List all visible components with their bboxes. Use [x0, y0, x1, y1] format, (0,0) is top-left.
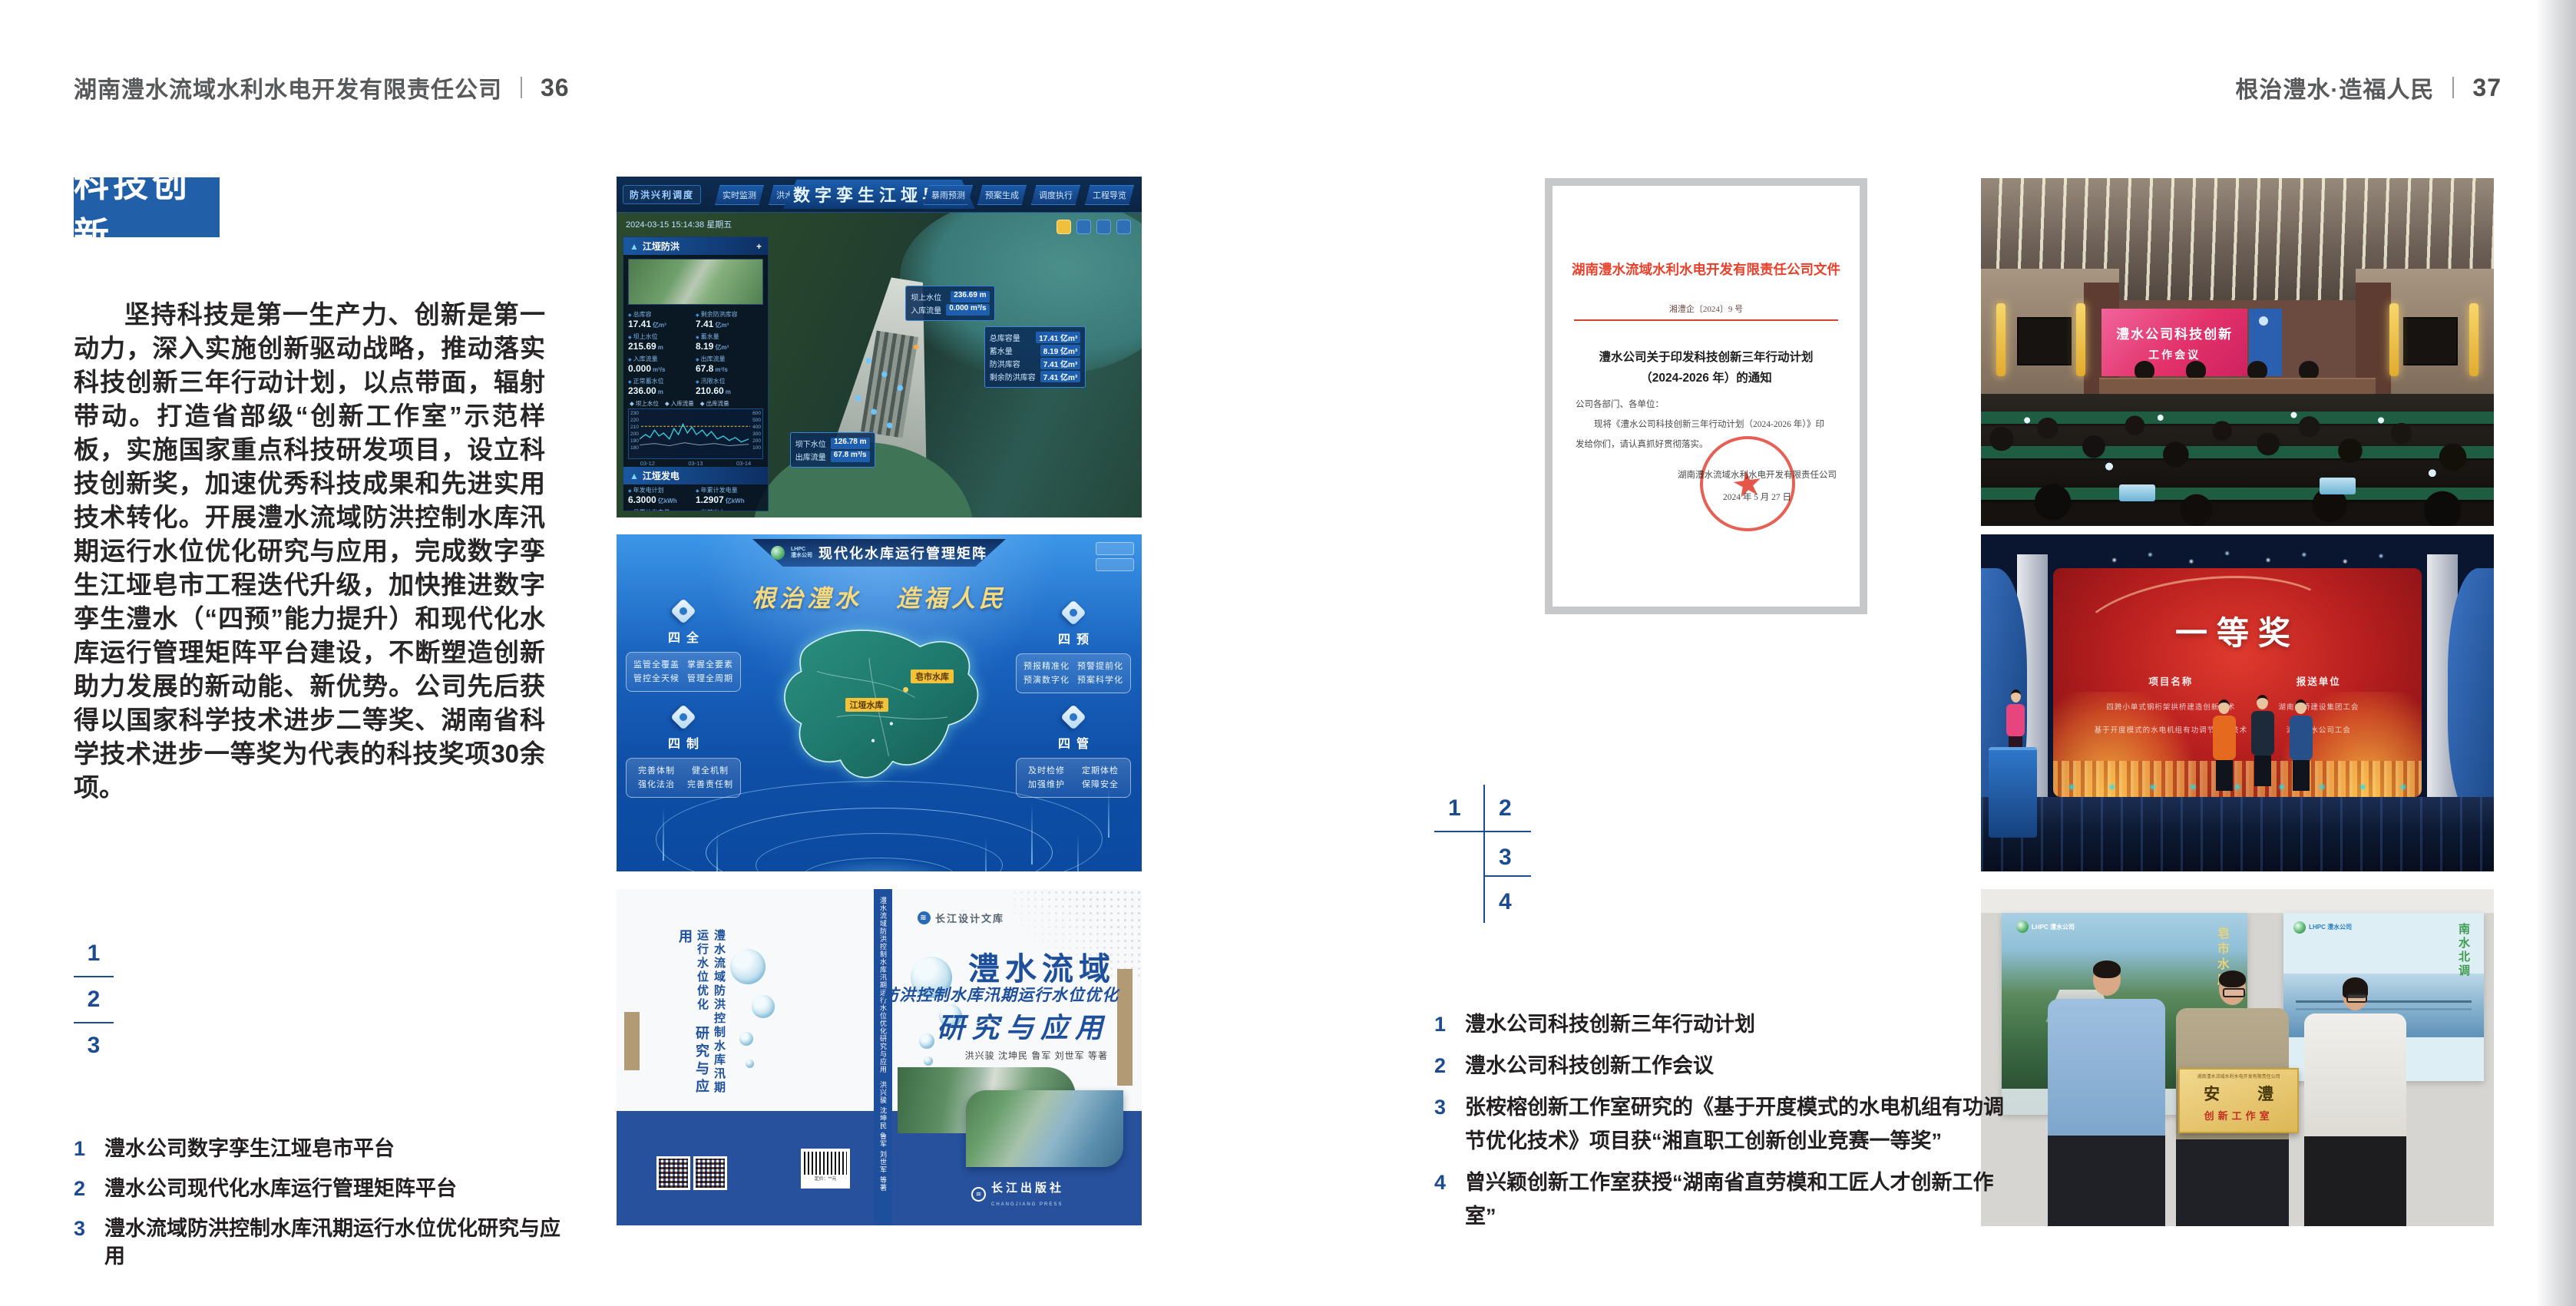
- audience-silhouettes: [1981, 394, 2494, 526]
- plaque-title: 安 澧: [2184, 1082, 2293, 1105]
- key-divider-line: [74, 976, 114, 977]
- wall-panel: [2356, 283, 2392, 394]
- caption-text: 曾兴颖创新工作室获授“湖南省直劳模和工匠人才创新工作室”: [1465, 1165, 2006, 1233]
- key-number: 3: [1499, 845, 1512, 871]
- qr-code: [656, 1156, 690, 1190]
- toolbar-icons: [1057, 220, 1131, 234]
- panel-title: 四预: [1016, 629, 1131, 647]
- header-left: 湖南澧水流域水利水电开发有限责任公司 36: [74, 71, 570, 104]
- panel-flood-header: ▲江垭防洪 +: [623, 237, 768, 255]
- panel-sizhi: 四制 完善体制健全机制 强化法治完善责任制: [626, 708, 741, 798]
- dam-thumbnail: [628, 259, 763, 305]
- caption-text: 澧水流域防洪控制水库汛期运行水位优化研究与应用: [104, 1215, 565, 1270]
- power-stats-grid: 年发电计划6.3000亿kWh 年累计发电量1.2907亿kWh 月累计发电量3…: [623, 484, 768, 511]
- column-unit-header: 报送单位: [2245, 673, 2392, 688]
- stat-cell: 坝上水位215.69m: [628, 332, 696, 352]
- chart-y-axis-left: 230220210200190180: [630, 411, 639, 451]
- chart-legend: ◆ 坝上水位 ◆ 入库流量 ◆ 出库流量: [623, 398, 768, 408]
- figure-official-document: 湖南澧水流域水利水电开发有限责任公司文件 湘澧企〔2024〕9 号 澧水公司关于…: [1545, 178, 1867, 614]
- caption-text: 澧水公司科技创新工作会议: [1465, 1049, 1714, 1083]
- matrix-title: 现代化水库运行管理矩阵: [818, 543, 987, 563]
- stage-floor: [1981, 797, 2494, 871]
- publisher-logo-icon: ≋: [971, 1187, 986, 1202]
- podium: [1989, 747, 2037, 838]
- library-logo: ≋ 长江设计文库: [918, 911, 1004, 925]
- authors-line: 洪兴骏 沈坤民 鲁军 刘世军 等著: [965, 1049, 1108, 1062]
- caption-text: 澧水公司科技创新三年行动计划: [1465, 1007, 1755, 1041]
- key-line: [1483, 875, 1531, 877]
- caption-text: 张桉榕创新工作室研究的《基于开度模式的水电机组有功调节优化技术》项目获“湘直职工…: [1465, 1090, 2006, 1158]
- mode-tag: 防洪兴利调度: [623, 185, 701, 204]
- tissue-box: [2320, 478, 2356, 495]
- document-body: 公司各部门、各单位： 现将《澧水公司科技创新三年行动计划（2024-2026 年…: [1576, 395, 1837, 455]
- callout-storage: 总库容量17.41 亿m³ 蓄水量8.19 亿m³ 防洪库容7.41 亿m³ 剩…: [984, 326, 1086, 388]
- dashboard-topbar: 防洪兴利调度 实时监测 洪水预报 防洪预警 数字孪生江垭皂市 暴雨预测 预案生成…: [617, 177, 1142, 213]
- key-line: [1434, 831, 1531, 832]
- front-title-main: 澧水流域: [968, 943, 1116, 989]
- caption-text: 澧水公司现代化水库运行管理矩阵平台: [104, 1175, 457, 1202]
- panel-title: 四制: [626, 733, 741, 752]
- map-label-jiangya: 江垭水库: [845, 698, 888, 712]
- panel-power-title: 江垭发电: [643, 471, 680, 481]
- stat-cell: 剩余防洪库容7.41亿m³: [696, 310, 763, 329]
- caption-number: 2: [1434, 1049, 1465, 1083]
- magazine-spread: 湖南澧水流域水利水电开发有限责任公司 36 科技创新 坚持科技是第一生产力、创新…: [0, 0, 2576, 1306]
- key-divider-line: [74, 1022, 114, 1023]
- company-name: 湖南澧水流域水利水电开发有限责任公司: [74, 71, 502, 104]
- page-edge-shadow: [2536, 0, 2576, 1306]
- figure-book-cover: 澧水流域防洪控制水库汛期运行水位优化 研究与应用 定价：**元 澧水流域防洪控制…: [617, 889, 1142, 1225]
- cover-photo-powerhouse: [966, 1090, 1123, 1167]
- key-number: 1: [1448, 795, 1461, 822]
- brand-text: LHPC澧水公司: [791, 547, 812, 559]
- figure-digital-twin-dashboard: 防洪兴利调度 实时监测 洪水预报 防洪预警 数字孪生江垭皂市 暴雨预测 预案生成…: [617, 177, 1142, 517]
- key-number: 2: [74, 984, 114, 1015]
- publisher-mark: ≋ 长江出版社CHANGJIANG PRESS: [971, 1179, 1064, 1209]
- water-drop: [739, 1032, 753, 1046]
- figure-group-photo: LHPC 澧水公司 皂市水库 LHPC 澧水公司 南水北调 湖南澧水流域水利水电…: [1981, 889, 2494, 1226]
- stage-light-fixtures: [2053, 770, 2422, 804]
- caption-row: 4 曾兴颖创新工作室获授“湖南省直劳模和工匠人才创新工作室”: [1434, 1165, 2006, 1233]
- tissue-box: [2119, 484, 2155, 502]
- presenter-silhouette: [2186, 361, 2206, 379]
- tab-dispatch-execute[interactable]: 调度执行: [1031, 185, 1080, 205]
- layers-icon[interactable]: [1076, 220, 1091, 234]
- tabs-right: 暴雨预测 预案生成 调度执行 工程导览: [924, 185, 1134, 205]
- panel-items: 预报精准化预警提前化 预演数字化预案科学化: [1016, 653, 1131, 693]
- header-right: 根治澧水·造福人民 37: [2235, 71, 2502, 104]
- panel-title: 四全: [626, 627, 741, 646]
- awardee-blue: [2289, 699, 2313, 792]
- person-right: [2304, 980, 2407, 1226]
- map-label-zaoshi: 皂市水库: [911, 670, 954, 683]
- captions-left: 1 澧水公司数字孪生江垭皂市平台 2 澧水公司现代化水库运行管理矩阵平台 3 澧…: [74, 1135, 565, 1282]
- front-title-tail: 研究与应用: [937, 1006, 1109, 1046]
- water-drop: [919, 1033, 934, 1049]
- wave-icon: ≋: [918, 911, 931, 924]
- blue-panel-right: [2448, 568, 2494, 825]
- water-level-chart: 230220210200190180 600500400300200100: [628, 408, 763, 459]
- stat-cell: 年累计发电量1.2907亿kWh: [696, 486, 763, 505]
- caption-row: 1 澧水公司科技创新三年行动计划: [1434, 1007, 2006, 1041]
- awardee-orange: [2212, 699, 2237, 792]
- fullscreen-button[interactable]: [1096, 542, 1134, 555]
- stat-cell: 正常蓄水位236.00m: [628, 377, 696, 396]
- panel-items: 及时检修定期体检 加强维护保障安全: [1016, 758, 1131, 798]
- page-number-left: 36: [541, 74, 570, 102]
- caption-row: 2 澧水公司现代化水库运行管理矩阵平台: [74, 1175, 565, 1202]
- star-icon: ★: [1729, 461, 1766, 506]
- wall-lamp: [2076, 303, 2085, 376]
- stat-cell: 出库流量67.8m³/s: [696, 355, 763, 374]
- qr-code: [693, 1156, 727, 1190]
- nav-button[interactable]: [1096, 558, 1134, 571]
- tab-realtime-monitor[interactable]: 实时监测: [715, 185, 764, 205]
- caption-row: 2 澧水公司科技创新工作会议: [1434, 1049, 2006, 1083]
- tan-accent: [1117, 969, 1133, 1086]
- tab-plan-generate[interactable]: 预案生成: [977, 185, 1027, 205]
- stat-cell: 年发电计划6.3000亿kWh: [628, 486, 696, 505]
- document-page: 湖南澧水流域水利水电开发有限责任公司文件 湘澧企〔2024〕9 号 澧水公司关于…: [1553, 186, 1860, 607]
- front-title-sub: 防洪控制水库汛期运行水位优化: [882, 983, 1119, 1006]
- ceiling-strip: [1981, 889, 2494, 913]
- left-data-panel: ▲江垭防洪 + 总库容17.41亿m³ 剩余防洪库容7.41亿m³ 坝上水位21…: [623, 236, 769, 511]
- key-number: 2: [1499, 795, 1512, 822]
- tab-rain-forecast[interactable]: 暴雨预测: [924, 185, 973, 205]
- book-spine: 澧水流域防洪控制水库汛期运行水位优化研究与应用 洪兴骏 沈坤民 鲁军 刘世军 等…: [874, 889, 892, 1225]
- stat-cell: 入库流量0.000m³/s: [628, 355, 696, 374]
- callout-downstream: 坝下水位126.78 m 出库流量67.8 m³/s: [790, 432, 875, 468]
- panel-siguan: 四管 及时检修定期体检 加强维护保障安全: [1016, 708, 1131, 798]
- barcode: 定价：**元: [801, 1149, 850, 1189]
- caption-number: 4: [1434, 1165, 1465, 1233]
- back-cover-title: 澧水流域防洪控制水库汛期运行水位优化 研究与应用: [676, 929, 727, 1106]
- red-rule: [1574, 319, 1838, 321]
- screen-title-line2: 工作会议: [2148, 347, 2201, 362]
- caption-number: 2: [74, 1175, 104, 1202]
- presenter-silhouette: [2299, 361, 2319, 379]
- key-number: 3: [74, 1030, 114, 1061]
- stat-cell: 月累计发电量3359.21万kWh: [628, 508, 696, 511]
- panel-siyu: 四预 预报精准化预警提前化 预演数字化预案科学化: [1016, 603, 1131, 693]
- water-drop: [730, 949, 766, 984]
- panel-logo-icon: ▲: [630, 471, 639, 481]
- basin-map: [752, 617, 1013, 817]
- lhpc-logo-icon: LHPC 澧水公司: [2293, 921, 2352, 934]
- panel-title: 四管: [1016, 733, 1131, 752]
- page-number-right: 37: [2472, 74, 2502, 102]
- figure-key-left: 1 2 3: [74, 938, 114, 1061]
- figure-meeting-photo: 澧水公司科技创新 工作会议: [1981, 178, 2494, 526]
- wall-lamp: [2389, 303, 2399, 376]
- caption-row: 3 澧水流域防洪控制水库汛期运行水位优化研究与应用: [74, 1215, 565, 1270]
- header-divider: [2452, 77, 2454, 98]
- caption-number: 3: [74, 1215, 104, 1270]
- panel-icon: [1060, 600, 1086, 626]
- caption-number: 1: [1434, 1007, 1465, 1041]
- stat-cell: 当前出力0.00MW: [696, 508, 763, 511]
- wall-lamp: [1996, 303, 2006, 376]
- stat-cell: 蓄水量8.19亿m³: [696, 332, 763, 352]
- expand-icon[interactable]: +: [756, 241, 762, 252]
- chart-y-axis-right: 600500400300200100: [752, 411, 761, 451]
- figure-management-matrix: LHPC澧水公司 现代化水库运行管理矩阵 根治澧水造福人民 皂市水库 江垭水库 …: [617, 534, 1142, 871]
- studio-plaque: 湖南澧水流域水利水电开发有限责任公司 安 澧 创新工作室: [2178, 1068, 2299, 1134]
- poster-right-calligraphy: 南水北调: [2455, 923, 2472, 978]
- person-left: [2048, 964, 2166, 1226]
- captions-right: 1 澧水公司科技创新三年行动计划 2 澧水公司科技创新工作会议 3 张桉榕创新工…: [1434, 1007, 2006, 1241]
- caption-row: 1 澧水公司数字孪生江垭皂市平台: [74, 1135, 565, 1162]
- figure-key-right: 1 2 3 4: [1434, 785, 1531, 924]
- water-drop: [746, 1060, 754, 1068]
- presenter-silhouette: [2135, 361, 2154, 379]
- presenter-silhouette: [2247, 361, 2267, 379]
- document-title: 澧水公司关于印发科技创新三年行动计划（2024-2026 年）的通知: [1553, 347, 1860, 388]
- document-number: 湘澧企〔2024〕9 号: [1553, 303, 1860, 315]
- caption-text: 澧水公司数字孪生江垭皂市平台: [104, 1135, 395, 1162]
- tan-accent: [624, 1012, 640, 1070]
- panel-logo-icon: ▲: [630, 241, 639, 252]
- key-number: 4: [1499, 889, 1512, 915]
- panel-flood-title: 江垭防洪: [643, 241, 680, 252]
- callout-upstream: 坝上水位236.69 m 入库流量0.000 m³/s: [905, 286, 994, 321]
- plaque-subtitle: 创新工作室: [2184, 1108, 2293, 1122]
- settings-icon[interactable]: [1116, 220, 1131, 234]
- figure-award-ceremony: 一等奖 项目名称 报送单位 四跨小单式钢桁架拱桥建造创新技术 基于开度模式的水电…: [1981, 534, 2494, 871]
- panel-icon: [670, 704, 696, 730]
- chart-canvas: [640, 411, 752, 455]
- water-drop: [752, 995, 775, 1018]
- wall-tv-right: [2403, 317, 2458, 365]
- key-number: 1: [74, 938, 114, 969]
- plaque-header: 湖南澧水流域水利水电开发有限责任公司: [2184, 1073, 2293, 1080]
- chart-x-axis: 03-1203-1303-14: [623, 460, 768, 467]
- locate-icon[interactable]: [1096, 220, 1111, 234]
- user-icon[interactable]: [1057, 220, 1071, 234]
- award-title: 一等奖: [2053, 607, 2422, 654]
- section-title-box: 科技创新: [74, 177, 220, 237]
- meeting-screen: 澧水公司科技创新 工作会议: [2101, 309, 2247, 376]
- led-screen: 一等奖 项目名称 报送单位 四跨小单式钢桁架拱桥建造创新技术 基于开度模式的水电…: [2053, 568, 2422, 798]
- datetime-label: 2024-03-15 15:14:38 星期五: [626, 218, 732, 230]
- panel-items: 完善体制健全机制 强化法治完善责任制: [626, 758, 741, 798]
- stat-cell: 汛限水位210.60m: [696, 377, 763, 396]
- caption-number: 3: [1434, 1090, 1465, 1158]
- caption-number: 1: [74, 1135, 104, 1162]
- header-divider: [521, 77, 522, 98]
- panel-icon: [1060, 704, 1086, 730]
- wall-tv-left: [2017, 317, 2072, 365]
- slogan: 根治澧水·造福人民: [2235, 71, 2434, 104]
- lhpc-logo-icon: LHPC 澧水公司: [2016, 921, 2075, 933]
- panel-icon: [670, 598, 696, 624]
- section-title: 科技创新: [74, 157, 220, 258]
- presenter-suit: [2250, 695, 2275, 787]
- document-letterhead: 湖南澧水流域水利水电开发有限责任公司文件: [1553, 260, 1860, 279]
- column-project-header: 项目名称: [2097, 673, 2244, 688]
- key-line: [1483, 785, 1485, 923]
- wall-lamp: [2469, 303, 2478, 376]
- water-drop: [924, 1056, 933, 1066]
- panel-siquan: 四全 监管全覆盖掌握全要素 管控全天候管理全周期: [626, 602, 741, 692]
- flood-stats-grid: 总库容17.41亿m³ 剩余防洪库容7.41亿m³ 坝上水位215.69m 蓄水…: [623, 309, 768, 398]
- body-paragraph: 坚持科技是第一生产力、创新是第一动力，深入实施创新驱动战略，推动落实科技创新三年…: [74, 298, 545, 805]
- panel-power-header: ▲江垭发电: [623, 467, 768, 484]
- screen-title-line1: 澧水公司科技创新: [2116, 323, 2233, 342]
- matrix-header: LHPC澧水公司 现代化水库运行管理矩阵: [752, 539, 1006, 567]
- tab-project-tour[interactable]: 工程导览: [1085, 185, 1134, 205]
- caption-row: 3 张桉榕创新工作室研究的《基于开度模式的水电机组有功调节优化技术》项目获“湘直…: [1434, 1090, 2006, 1158]
- stat-cell: 总库容17.41亿m³: [628, 310, 696, 329]
- panel-items: 监管全覆盖掌握全要素 管控全天候管理全周期: [626, 652, 741, 692]
